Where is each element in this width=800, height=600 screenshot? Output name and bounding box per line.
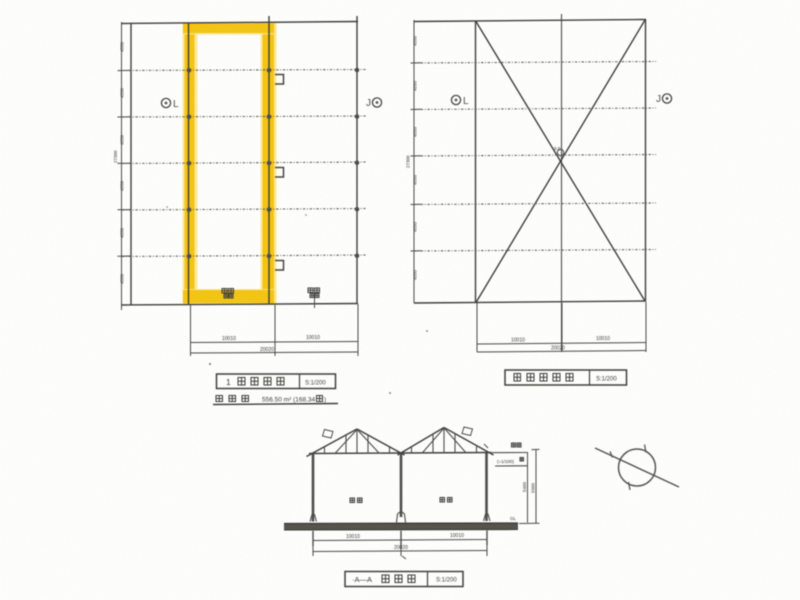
- svg-text:5960: 5960: [531, 482, 536, 493]
- svg-text:10010: 10010: [222, 336, 236, 342]
- svg-text:5460: 5460: [522, 481, 527, 492]
- svg-text:4550: 4550: [120, 134, 125, 145]
- svg-text:9.0: 9.0: [554, 146, 561, 151]
- svg-text:4550: 4550: [413, 269, 418, 280]
- svg-text:4550: 4550: [120, 273, 125, 284]
- svg-text:27300: 27300: [113, 150, 118, 163]
- svg-text:10010: 10010: [306, 335, 320, 341]
- svg-text:4550: 4550: [120, 87, 125, 98]
- svg-text:20020: 20020: [260, 347, 274, 353]
- svg-text:4550: 4550: [413, 174, 418, 185]
- svg-text:27300: 27300: [406, 155, 411, 168]
- svg-text:10010: 10010: [450, 533, 464, 539]
- svg-text:4550: 4550: [413, 126, 418, 137]
- svg-text:10010: 10010: [346, 534, 360, 540]
- svg-text:S:1/200: S:1/200: [596, 377, 617, 383]
- svg-text:J: J: [366, 98, 371, 109]
- svg-text:S:1/200: S:1/200: [305, 381, 326, 387]
- svg-text:4550: 4550: [413, 221, 418, 232]
- svg-text:556.50 m² (168.34: 556.50 m² (168.34: [262, 397, 316, 404]
- svg-text:4550: 4550: [120, 227, 125, 238]
- svg-text:4550: 4550: [120, 180, 125, 191]
- svg-text:4550: 4550: [413, 35, 418, 46]
- svg-text:J: J: [656, 94, 661, 105]
- svg-text:20020: 20020: [551, 346, 565, 352]
- svg-text:L: L: [463, 96, 469, 107]
- svg-text:GL: GL: [510, 516, 517, 521]
- svg-text:L: L: [173, 99, 179, 110]
- svg-text:·A—A: ·A—A: [352, 575, 372, 584]
- svg-text:10010: 10010: [596, 336, 610, 342]
- svg-text:): ): [324, 397, 326, 404]
- svg-text:S:1/200: S:1/200: [436, 578, 457, 584]
- svg-text:20020: 20020: [394, 545, 408, 551]
- svg-text:4550: 4550: [413, 80, 418, 91]
- svg-text:(=1/100): (=1/100): [497, 459, 514, 464]
- svg-text:4550: 4550: [120, 41, 125, 52]
- svg-text:10010: 10010: [511, 338, 525, 344]
- svg-text:1: 1: [226, 377, 231, 387]
